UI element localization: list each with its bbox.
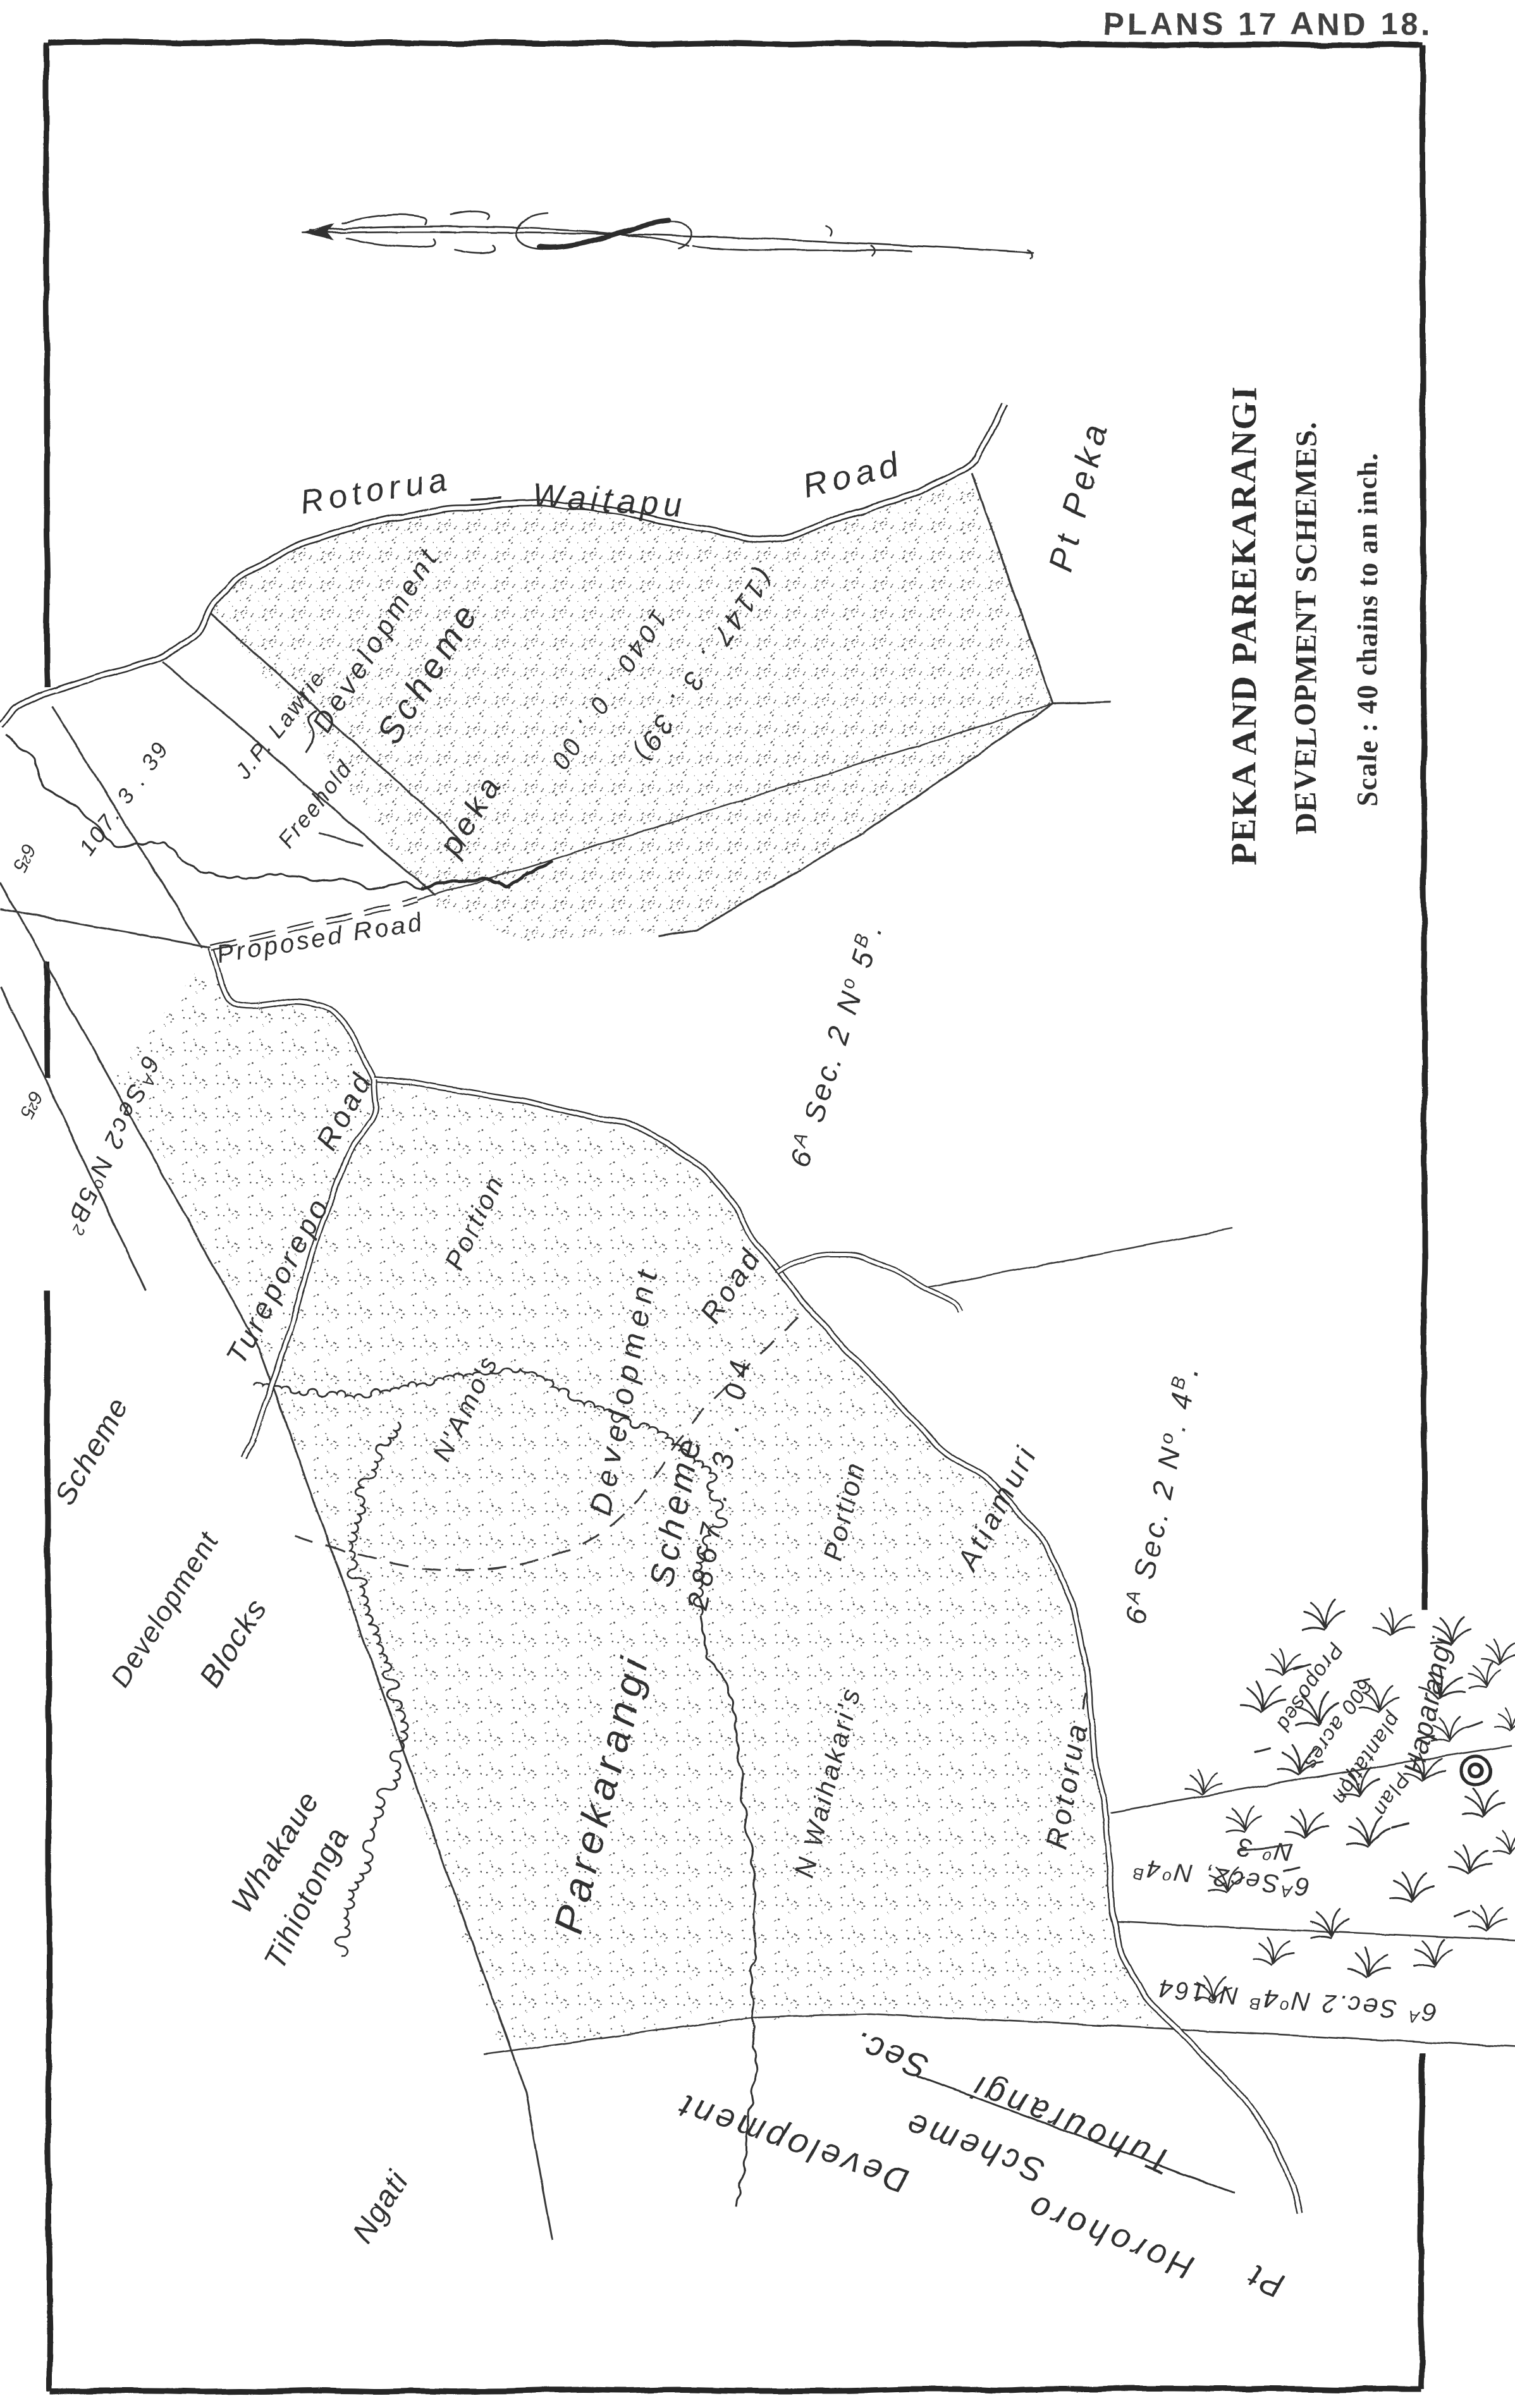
svg-text:PLANS 17 AND 18.: PLANS 17 AND 18. — [1103, 6, 1433, 41]
svg-text:Scale : 40 chains to an inch.: Scale : 40 chains to an inch. — [1351, 451, 1382, 806]
svg-text:PEKA AND PAREKARANGI: PEKA AND PAREKARANGI — [1224, 385, 1263, 864]
svg-text:—: — — [469, 479, 502, 514]
svg-text:DEVELOPMENT SCHEMES.: DEVELOPMENT SCHEMES. — [1289, 420, 1322, 834]
